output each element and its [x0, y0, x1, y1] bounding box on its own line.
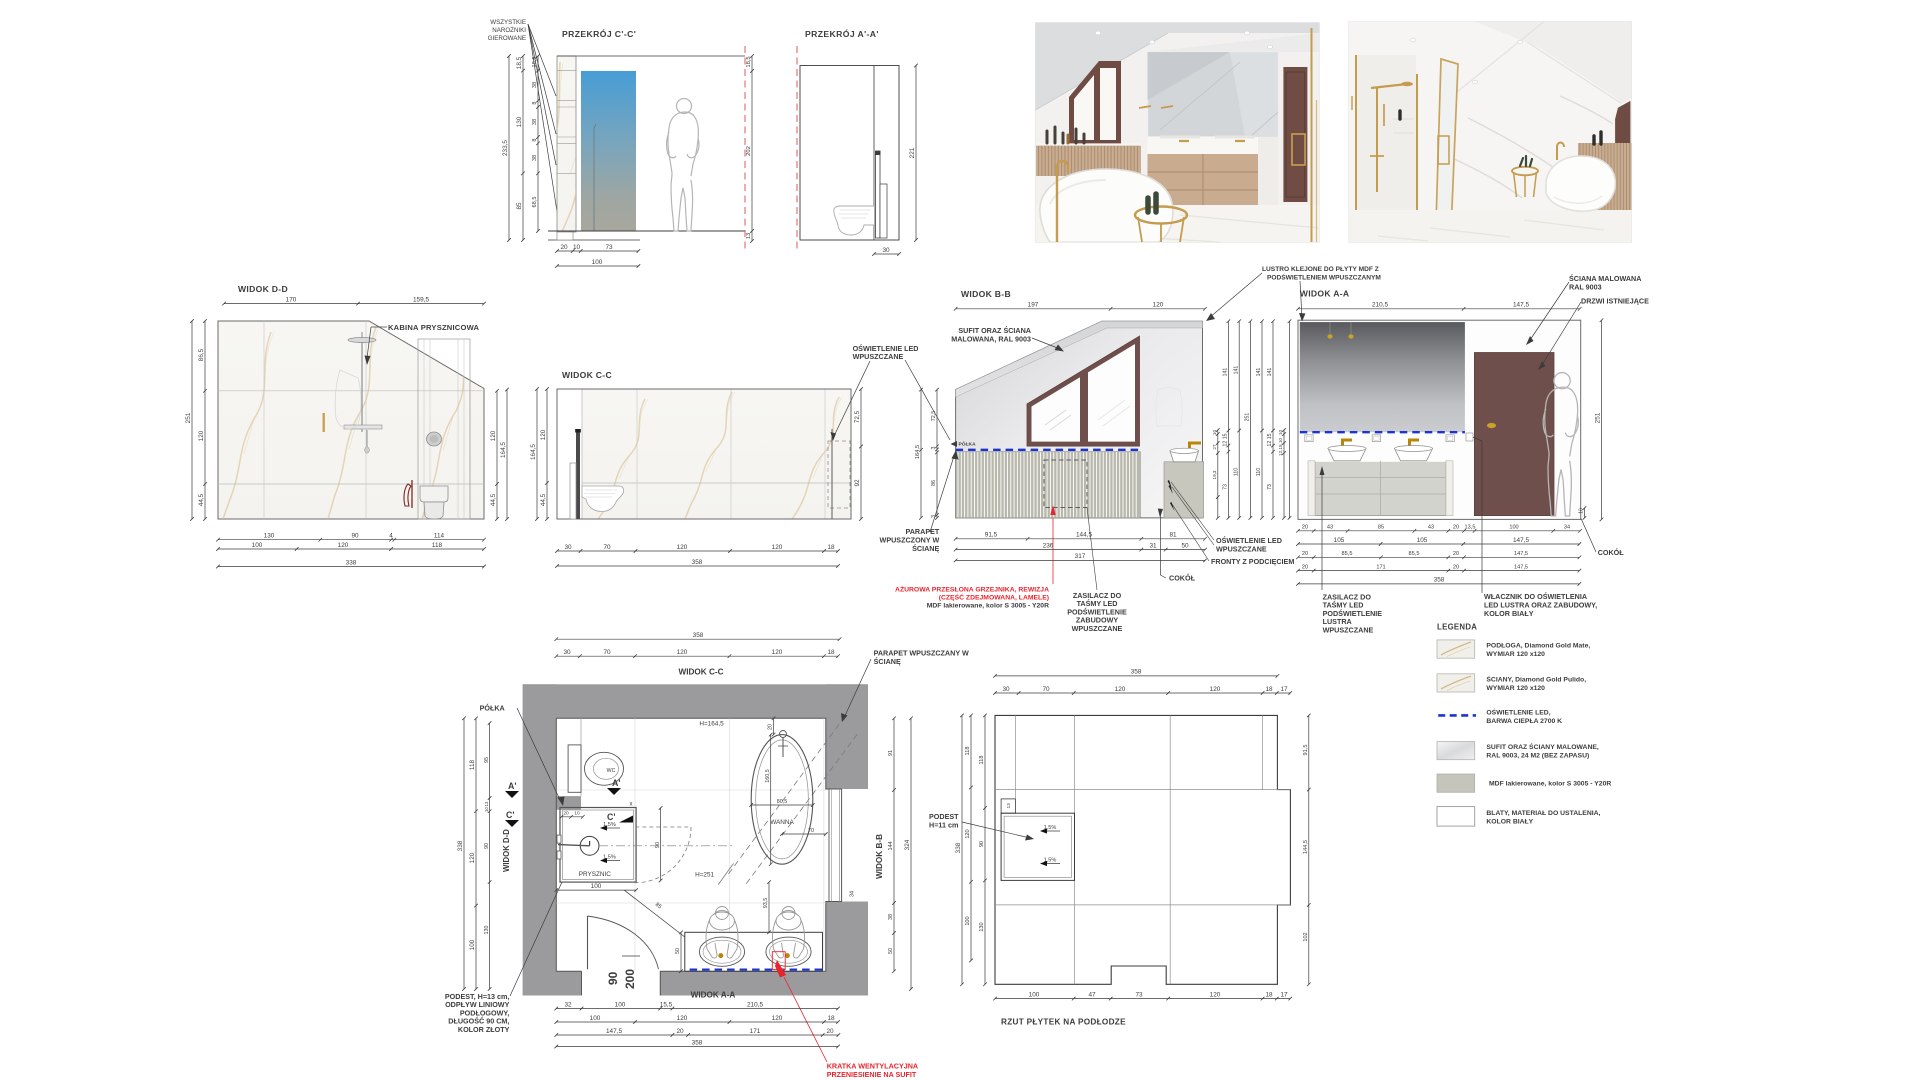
- svg-text:73: 73: [1223, 484, 1229, 490]
- svg-text:92: 92: [854, 479, 861, 487]
- svg-text:KOLOR BIAŁY: KOLOR BIAŁY: [1486, 819, 1533, 826]
- svg-text:WYMIAR 120 x120: WYMIAR 120 x120: [1486, 651, 1545, 658]
- svg-text:A': A': [508, 781, 516, 791]
- svg-text:73: 73: [1135, 991, 1143, 998]
- svg-text:WC: WC: [607, 768, 616, 774]
- svg-text:358: 358: [692, 1039, 703, 1046]
- svg-text:120: 120: [540, 429, 547, 440]
- svg-text:91,5: 91,5: [1303, 745, 1309, 756]
- svg-text:WIDOK A-A: WIDOK A-A: [691, 991, 736, 1000]
- svg-text:91: 91: [888, 750, 894, 756]
- svg-text:AŻUROWA PRZESŁONA GRZEJNIKA, R: AŻUROWA PRZESŁONA GRZEJNIKA, REWIZJA: [895, 586, 1049, 594]
- svg-text:73: 73: [605, 244, 613, 251]
- svg-text:RZUT PŁYTEK NA PODŁODZE: RZUT PŁYTEK NA PODŁODZE: [1001, 1018, 1126, 1027]
- svg-text:160,5: 160,5: [765, 769, 771, 783]
- svg-text:120: 120: [1210, 991, 1221, 998]
- svg-text:90: 90: [655, 842, 661, 848]
- svg-text:100: 100: [965, 916, 971, 925]
- svg-text:91,5: 91,5: [985, 532, 998, 539]
- svg-text:20: 20: [826, 1028, 834, 1035]
- svg-text:100: 100: [1029, 991, 1040, 998]
- svg-text:120: 120: [338, 542, 349, 549]
- svg-text:100: 100: [252, 542, 263, 549]
- svg-text:MDF lakierowane, kolor S 3005: MDF lakierowane, kolor S 3005 - Y20R: [1489, 781, 1611, 788]
- svg-text:130: 130: [516, 116, 523, 127]
- svg-text:324: 324: [904, 839, 911, 850]
- svg-text:20: 20: [1302, 525, 1308, 531]
- svg-text:105: 105: [1417, 537, 1428, 544]
- svg-text:100: 100: [615, 1001, 626, 1008]
- svg-text:13: 13: [484, 801, 489, 806]
- svg-text:120: 120: [677, 544, 688, 551]
- svg-text:233,5: 233,5: [502, 140, 509, 156]
- svg-text:A': A': [612, 778, 620, 788]
- svg-text:ŚCIANĘ: ŚCIANĘ: [874, 657, 901, 666]
- svg-text:18: 18: [1265, 991, 1273, 998]
- svg-text:PRZENIESIENIE NA SUFIT: PRZENIESIENIE NA SUFIT: [827, 1070, 917, 1079]
- svg-text:MDF lakierowane, kolor S 3005: MDF lakierowane, kolor S 3005 - Y20R: [927, 603, 1049, 610]
- svg-text:BARWA CIEPŁA 2700 K: BARWA CIEPŁA 2700 K: [1486, 718, 1562, 725]
- svg-text:17: 17: [1280, 991, 1288, 998]
- svg-text:WANNA: WANNA: [770, 819, 794, 826]
- svg-text:KOLOR BIAŁY: KOLOR BIAŁY: [1484, 609, 1534, 618]
- svg-text:70: 70: [1042, 686, 1050, 693]
- svg-text:100: 100: [592, 259, 603, 266]
- svg-text:RAL 9003: RAL 9003: [1569, 283, 1602, 292]
- svg-text:147,5: 147,5: [1513, 302, 1529, 309]
- svg-text:WIDOK B-B: WIDOK B-B: [875, 834, 884, 879]
- svg-text:18: 18: [1265, 686, 1273, 693]
- svg-text:110: 110: [1256, 468, 1262, 476]
- svg-text:SUFIT ORAZ ŚCIANY MALOWANE,: SUFIT ORAZ ŚCIANY MALOWANE,: [1486, 742, 1599, 751]
- svg-text:LUSTRO KLEJONE DO PŁYTY MDF Z: LUSTRO KLEJONE DO PŁYTY MDF Z: [1262, 266, 1379, 273]
- svg-text:144: 144: [888, 842, 894, 851]
- svg-text:70: 70: [603, 544, 611, 551]
- svg-text:8: 8: [532, 101, 538, 104]
- svg-text:86: 86: [931, 480, 937, 486]
- svg-text:44,5: 44,5: [198, 493, 205, 506]
- svg-text:85: 85: [516, 202, 523, 210]
- svg-text:30: 30: [563, 649, 571, 656]
- svg-text:18: 18: [827, 1015, 835, 1022]
- svg-text:197: 197: [1028, 302, 1039, 309]
- svg-text:20: 20: [560, 244, 568, 251]
- svg-text:PRZEKRÓJ A'-A': PRZEKRÓJ A'-A': [805, 28, 879, 39]
- svg-text:WPUSZCZANE: WPUSZCZANE: [1323, 625, 1374, 634]
- svg-text:114: 114: [434, 533, 445, 540]
- svg-text:19,3: 19,3: [1212, 470, 1217, 479]
- svg-text:4: 4: [389, 533, 393, 540]
- svg-text:20: 20: [1302, 564, 1308, 570]
- svg-text:100: 100: [1509, 525, 1518, 531]
- svg-text:C': C': [506, 810, 514, 820]
- svg-text:90: 90: [484, 843, 490, 849]
- svg-text:43: 43: [1327, 525, 1333, 531]
- svg-text:338: 338: [457, 840, 464, 851]
- svg-text:70: 70: [808, 828, 814, 834]
- svg-text:3: 3: [931, 447, 937, 450]
- svg-text:DRZWI ISTNIEJĄCE: DRZWI ISTNIEJĄCE: [1581, 297, 1649, 306]
- svg-text:10: 10: [1579, 508, 1585, 514]
- svg-text:NAROŻNIKI: NAROŻNIKI: [492, 27, 526, 34]
- svg-text:141: 141: [1256, 368, 1262, 377]
- svg-text:C': C': [607, 812, 615, 822]
- svg-text:358: 358: [693, 632, 704, 639]
- svg-text:164,5: 164,5: [530, 444, 537, 460]
- svg-text:141: 141: [1223, 368, 1229, 377]
- svg-text:171: 171: [1376, 564, 1385, 570]
- svg-text:32: 32: [564, 1001, 572, 1008]
- svg-text:338: 338: [955, 842, 962, 853]
- svg-text:13,5: 13,5: [1465, 525, 1476, 531]
- svg-text:171: 171: [750, 1028, 761, 1035]
- svg-text:251: 251: [1595, 412, 1602, 423]
- svg-text:3: 3: [931, 515, 937, 518]
- svg-text:147,5: 147,5: [1513, 537, 1529, 544]
- svg-text:38: 38: [888, 914, 894, 920]
- svg-text:80,5: 80,5: [777, 799, 788, 805]
- svg-text:141: 141: [1267, 368, 1273, 377]
- svg-text:102: 102: [1303, 932, 1309, 941]
- svg-text:31: 31: [1149, 542, 1157, 549]
- svg-text:221: 221: [909, 147, 916, 158]
- svg-text:38: 38: [532, 119, 538, 125]
- svg-text:358: 358: [1131, 669, 1142, 676]
- svg-text:10: 10: [574, 811, 580, 817]
- svg-text:COKÓŁ: COKÓŁ: [1169, 574, 1196, 583]
- svg-text:120: 120: [1153, 302, 1164, 309]
- svg-text:251: 251: [185, 412, 192, 423]
- svg-text:x: x: [630, 802, 633, 808]
- svg-text:43: 43: [1428, 525, 1434, 531]
- svg-text:100: 100: [469, 939, 476, 950]
- svg-text:44,5: 44,5: [540, 493, 547, 506]
- svg-text:120: 120: [772, 544, 783, 551]
- svg-text:85,5: 85,5: [1342, 551, 1353, 557]
- svg-text:118: 118: [469, 759, 476, 770]
- svg-text:164,5: 164,5: [500, 442, 507, 458]
- svg-text:68,5: 68,5: [532, 197, 538, 208]
- svg-text:30: 30: [882, 247, 890, 254]
- svg-text:ŚCIANY, Diamond Gold Pulido,: ŚCIANY, Diamond Gold Pulido,: [1486, 675, 1586, 684]
- svg-text:H=164,5: H=164,5: [699, 720, 724, 727]
- svg-text:20: 20: [1453, 525, 1459, 531]
- svg-text:34: 34: [850, 891, 856, 897]
- svg-text:147,5: 147,5: [1514, 564, 1528, 570]
- svg-text:118: 118: [432, 542, 443, 549]
- svg-text:WIDOK C-C: WIDOK C-C: [678, 668, 723, 677]
- svg-text:120: 120: [965, 829, 971, 838]
- svg-text:110: 110: [1233, 468, 1239, 476]
- svg-text:15,5: 15,5: [660, 1001, 673, 1008]
- svg-text:PRYSZNIC: PRYSZNIC: [579, 871, 612, 878]
- svg-text:18: 18: [827, 649, 835, 656]
- svg-text:12 15: 12 15: [1267, 433, 1273, 446]
- svg-text:PODŁOGA, Diamond Gold Mate,: PODŁOGA, Diamond Gold Mate,: [1486, 643, 1590, 650]
- svg-text:120: 120: [772, 1015, 783, 1022]
- svg-text:358: 358: [1434, 577, 1445, 584]
- svg-text:13: 13: [1006, 803, 1012, 809]
- svg-text:338: 338: [346, 559, 357, 566]
- svg-text:WIDOK D-D: WIDOK D-D: [502, 829, 511, 872]
- svg-text:50: 50: [1181, 542, 1189, 549]
- svg-text:90: 90: [979, 841, 985, 847]
- svg-text:WPUSZCZANE: WPUSZCZANE: [853, 352, 904, 361]
- svg-text:120: 120: [490, 430, 497, 441]
- svg-text:20: 20: [768, 724, 774, 730]
- svg-text:ŚCIANĘ: ŚCIANĘ: [912, 544, 939, 553]
- svg-text:KOLOR ZŁOTY: KOLOR ZŁOTY: [458, 1025, 510, 1034]
- svg-text:120: 120: [677, 1015, 688, 1022]
- svg-text:120: 120: [677, 649, 688, 656]
- svg-text:38: 38: [532, 82, 538, 88]
- svg-text:MALOWANA, RAL 9003: MALOWANA, RAL 9003: [951, 335, 1031, 344]
- svg-text:10: 10: [1278, 430, 1283, 436]
- svg-text:RAL 9003, 24 M2 (BEZ ZAPASU): RAL 9003, 24 M2 (BEZ ZAPASU): [1486, 753, 1589, 760]
- svg-text:20: 20: [676, 1028, 684, 1035]
- svg-text:12,15,10: 12,15,10: [1278, 438, 1283, 456]
- svg-text:WIDOK D-D: WIDOK D-D: [238, 284, 288, 294]
- svg-text:70: 70: [603, 649, 611, 656]
- svg-text:90: 90: [351, 533, 359, 540]
- svg-text:210,5: 210,5: [1372, 302, 1388, 309]
- svg-text:OŚWIETLENIE LED,: OŚWIETLENIE LED,: [1486, 708, 1550, 717]
- svg-text:38: 38: [532, 155, 538, 161]
- svg-text:GIEROWANE: GIEROWANE: [488, 35, 526, 42]
- svg-text:90: 90: [606, 971, 620, 985]
- svg-text:30: 30: [564, 544, 572, 551]
- svg-text:LEGENDA: LEGENDA: [1437, 623, 1477, 632]
- svg-text:18: 18: [827, 544, 835, 551]
- svg-text:73: 73: [1267, 484, 1273, 490]
- svg-text:130: 130: [264, 533, 275, 540]
- svg-text:141: 141: [1233, 366, 1239, 375]
- svg-text:47: 47: [1088, 991, 1096, 998]
- svg-text:12 15: 12 15: [1223, 433, 1229, 446]
- svg-text:118: 118: [979, 756, 985, 765]
- svg-text:H=11 cm: H=11 cm: [929, 821, 958, 830]
- svg-text:20: 20: [1453, 564, 1459, 570]
- svg-text:WIDOK C-C: WIDOK C-C: [562, 370, 612, 380]
- svg-text:BLATY, MATERIAŁ DO USTALENIA,: BLATY, MATERIAŁ DO USTALENIA,: [1486, 810, 1600, 817]
- svg-text:50: 50: [888, 948, 894, 954]
- svg-text:95: 95: [484, 757, 490, 763]
- svg-text:86,5: 86,5: [198, 348, 205, 361]
- svg-text:FRONTY Z PODCIĘCIEM: FRONTY Z PODCIĘCIEM: [1211, 557, 1294, 566]
- svg-text:(CZĘŚĆ ZDEJMOWANA, LAMELE): (CZĘŚĆ ZDEJMOWANA, LAMELE): [939, 593, 1049, 602]
- svg-text:27: 27: [1212, 444, 1217, 450]
- svg-text:8: 8: [532, 138, 538, 141]
- svg-text:202: 202: [746, 146, 752, 156]
- svg-text:120: 120: [1210, 686, 1221, 693]
- svg-text:118: 118: [965, 747, 971, 756]
- svg-text:PODŚWIETLENIEM WPUSZCZANYM: PODŚWIETLENIEM WPUSZCZANYM: [1267, 273, 1381, 282]
- svg-text:358: 358: [692, 559, 703, 566]
- svg-text:18,5: 18,5: [516, 56, 523, 69]
- svg-text:10: 10: [573, 244, 581, 251]
- svg-text:18,5: 18,5: [532, 57, 538, 68]
- svg-text:105: 105: [1334, 537, 1345, 544]
- svg-text:KABINA PRYSZNICOWA: KABINA PRYSZNICOWA: [388, 323, 480, 332]
- svg-text:164,5: 164,5: [915, 445, 921, 460]
- svg-text:13: 13: [746, 233, 752, 239]
- svg-text:44,5: 44,5: [490, 493, 497, 506]
- svg-text:WIDOK B-B: WIDOK B-B: [961, 289, 1011, 299]
- svg-text:17: 17: [1280, 686, 1288, 693]
- svg-text:WPUSZCZANE: WPUSZCZANE: [1216, 545, 1267, 554]
- svg-text:30: 30: [1002, 686, 1010, 693]
- svg-text:PRZEKRÓJ C'-C': PRZEKRÓJ C'-C': [562, 28, 636, 39]
- svg-text:20: 20: [563, 811, 569, 817]
- svg-text:120: 120: [469, 852, 476, 863]
- svg-text:120: 120: [1115, 686, 1126, 693]
- svg-text:144,5: 144,5: [1303, 840, 1309, 854]
- svg-text:317: 317: [1075, 553, 1086, 560]
- svg-text:85,5: 85,5: [1409, 551, 1420, 557]
- svg-text:93,5: 93,5: [763, 898, 769, 909]
- svg-text:100: 100: [590, 1015, 601, 1022]
- svg-text:130: 130: [484, 926, 490, 935]
- svg-text:WIDOK A-A: WIDOK A-A: [1300, 289, 1350, 299]
- svg-text:H=251: H=251: [695, 872, 714, 879]
- svg-text:200: 200: [623, 969, 637, 989]
- svg-text:251: 251: [1245, 413, 1251, 422]
- svg-text:85: 85: [1378, 525, 1384, 531]
- svg-text:34: 34: [1564, 525, 1570, 531]
- svg-text:170: 170: [286, 296, 297, 303]
- svg-text:120: 120: [198, 430, 205, 441]
- svg-text:72,5: 72,5: [854, 410, 861, 423]
- svg-text:PÓŁKA: PÓŁKA: [480, 704, 505, 713]
- svg-text:159,5: 159,5: [413, 296, 429, 303]
- svg-text:130: 130: [979, 922, 985, 931]
- svg-text:WYMIAR 120 x120: WYMIAR 120 x120: [1486, 685, 1545, 692]
- svg-text:120: 120: [772, 649, 783, 656]
- svg-text:WPUSZCZANE: WPUSZCZANE: [1072, 624, 1123, 633]
- svg-text:18,5: 18,5: [746, 56, 752, 67]
- svg-text:50: 50: [675, 948, 681, 954]
- svg-text:147,5: 147,5: [606, 1028, 622, 1035]
- svg-text:147,5: 147,5: [1514, 551, 1528, 557]
- svg-text:100: 100: [591, 883, 602, 890]
- svg-text:WSZYSTKIE: WSZYSTKIE: [490, 19, 526, 26]
- svg-text:10: 10: [484, 807, 489, 812]
- svg-text:20: 20: [1453, 551, 1459, 557]
- svg-text:10: 10: [1212, 430, 1217, 436]
- svg-text:COKÓŁ: COKÓŁ: [1598, 548, 1625, 557]
- svg-text:210,5: 210,5: [747, 1001, 763, 1008]
- svg-text:20: 20: [1302, 551, 1308, 557]
- svg-text:81: 81: [1169, 532, 1177, 539]
- svg-text:236: 236: [1043, 542, 1054, 549]
